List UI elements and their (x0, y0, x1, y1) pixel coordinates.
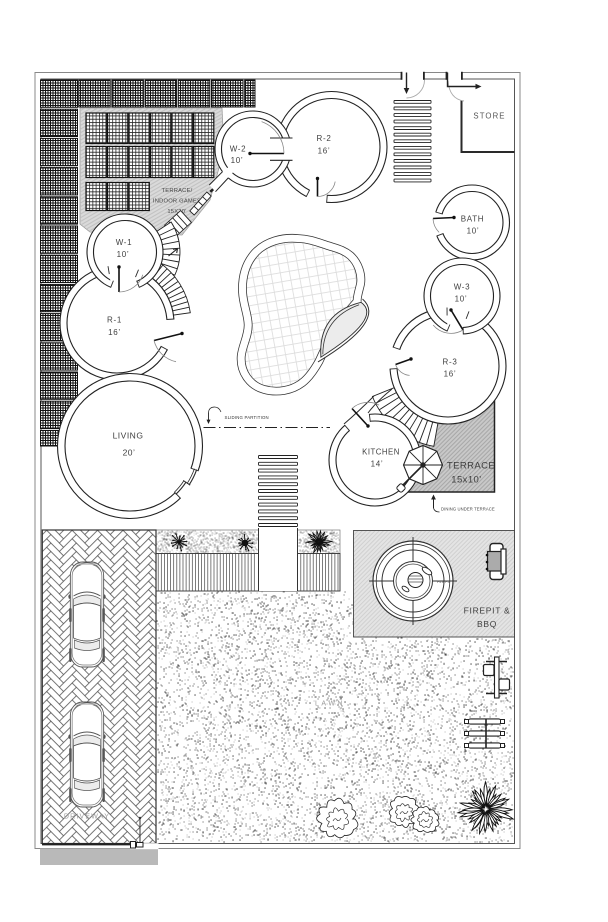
svg-text:KITCHEN: KITCHEN (362, 448, 400, 457)
svg-text:10’: 10’ (455, 295, 468, 304)
svg-text:16’: 16’ (108, 328, 121, 337)
svg-text:10’: 10’ (117, 250, 130, 259)
svg-text:W-2: W-2 (230, 145, 247, 154)
svg-text:DINING UNDER TERRACE: DINING UNDER TERRACE (441, 507, 495, 512)
svg-text:DRIVEWAY: DRIVEWAY (64, 814, 110, 821)
svg-text:TERRACE/: TERRACE/ (162, 188, 193, 194)
svg-text:10’: 10’ (231, 156, 244, 165)
svg-text:R-1: R-1 (107, 316, 122, 325)
svg-text:LIVING: LIVING (113, 431, 144, 441)
svg-text:R-2: R-2 (317, 134, 332, 143)
svg-text:INDOOR GAMES: INDOOR GAMES (153, 199, 201, 205)
svg-text:14’: 14’ (371, 460, 384, 469)
svg-text:10’: 10’ (467, 227, 480, 236)
svg-text:BATH: BATH (461, 215, 485, 224)
svg-text:Fire Pit: Fire Pit (437, 579, 451, 584)
svg-text:R-3: R-3 (443, 358, 458, 367)
svg-text:STORE: STORE (473, 112, 505, 121)
svg-text:16’: 16’ (444, 370, 457, 379)
svg-text:W-1: W-1 (116, 238, 133, 247)
svg-text:TERRACE: TERRACE (447, 461, 495, 472)
svg-text:16’: 16’ (318, 147, 331, 156)
svg-text:W-3: W-3 (454, 283, 471, 292)
svg-text:20’: 20’ (123, 448, 136, 458)
svg-text:FIREPIT &: FIREPIT & (464, 606, 511, 616)
svg-text:SLIDING PARTITION: SLIDING PARTITION (225, 415, 269, 420)
svg-text:LAWN: LAWN (315, 701, 345, 708)
svg-text:15x10’: 15x10’ (451, 475, 481, 486)
svg-text:BBQ: BBQ (477, 619, 497, 629)
